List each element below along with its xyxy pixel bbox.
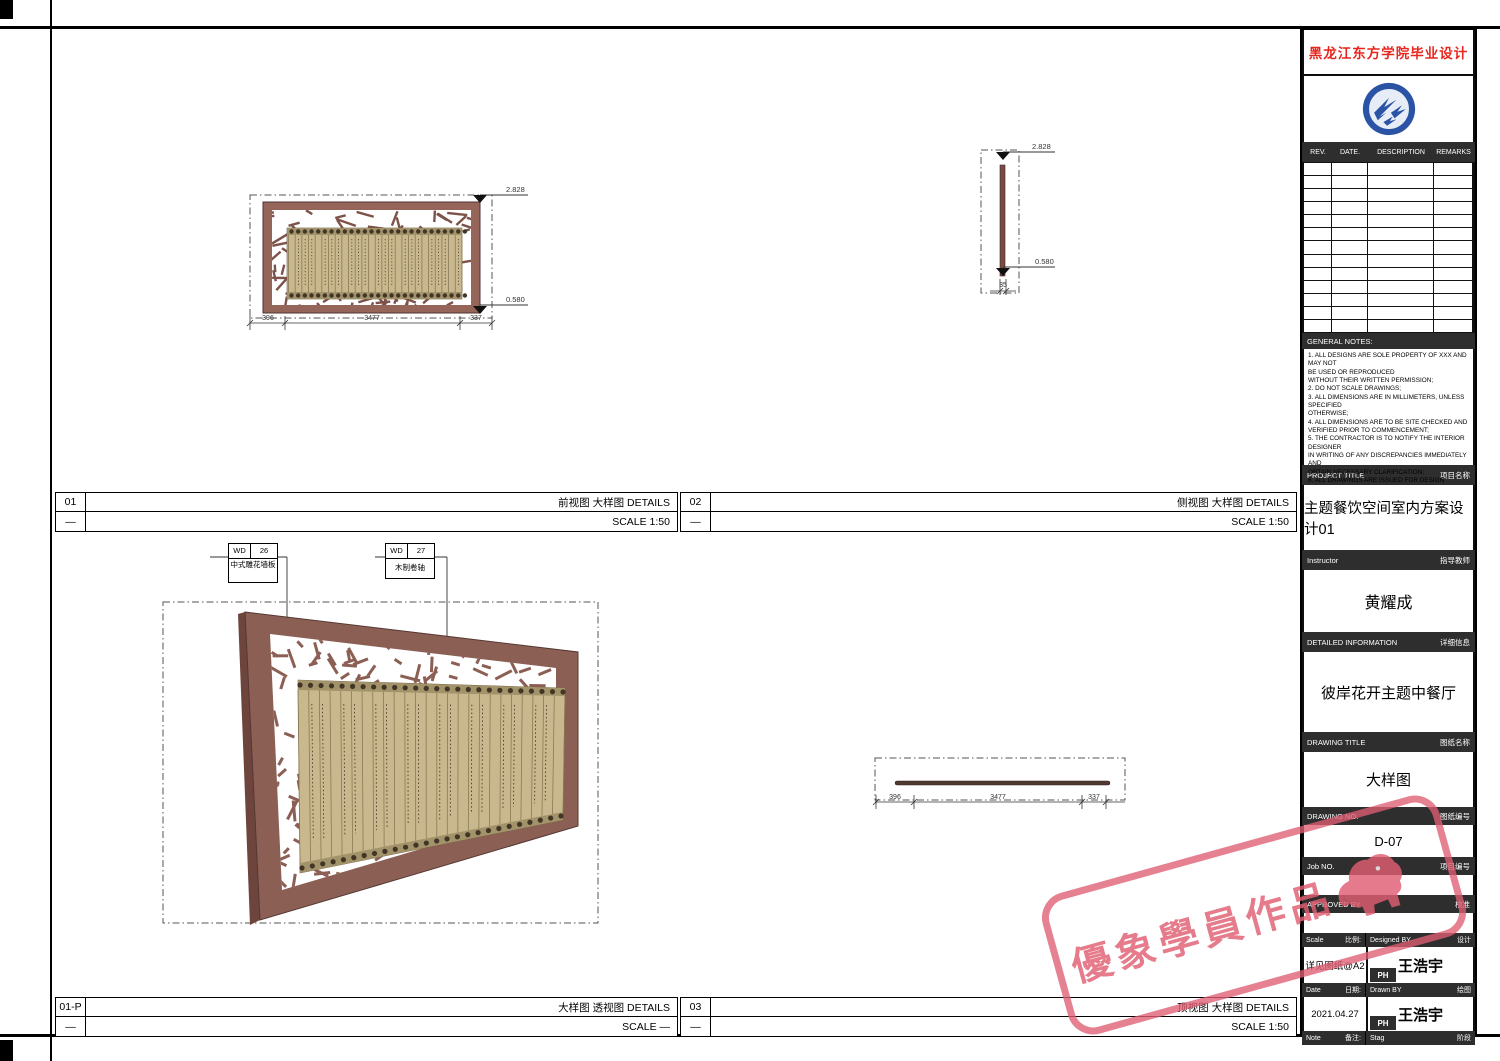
rev-table-cell <box>1304 241 1332 254</box>
rev-table-cell <box>1332 320 1368 333</box>
dim-front-left: 396 <box>262 315 274 322</box>
panel-titlebar-01: 01 前视图 大样图 DETAILS — SCALE 1:50 <box>55 492 678 532</box>
instructor-header: Instructor 指导教师 <box>1302 550 1475 570</box>
panel-scale: SCALE 1:50 <box>711 512 1296 531</box>
panel-number: 01-P <box>56 998 86 1017</box>
panel-number: 01 <box>56 493 86 512</box>
watermark-text: 優象學員作品 <box>1064 865 1340 993</box>
dim-top-mid: 3477 <box>990 794 1006 801</box>
dim-side-top: 2.828 <box>1032 142 1051 151</box>
rev-table-cell <box>1368 268 1434 281</box>
rev-table-cell <box>1304 255 1332 268</box>
rev-table-cell <box>1332 294 1368 307</box>
drawing-no-zh: 图纸编号 <box>1440 811 1470 822</box>
panel-titlebar-03: 03 顶视图 大样图 DETAILS — SCALE 1:50 <box>680 997 1297 1037</box>
rev-table-cell <box>1304 215 1332 228</box>
rev-table-cell <box>1368 320 1434 333</box>
rev-table-cell <box>1434 202 1473 215</box>
date-drawn-values: 2021.04.27 PH 王浩宇 <box>1304 997 1473 1031</box>
rev-table-cell <box>1332 163 1368 176</box>
date-value: 2021.04.27 <box>1304 997 1368 1031</box>
callout-num: 26 <box>251 544 277 558</box>
top-view-drawing: 396 3477 337 <box>858 743 1143 823</box>
drawing-title-value: 大样图 <box>1304 752 1473 807</box>
scale-designed-header: Scale比例: Designed BY设计 <box>1302 933 1475 947</box>
approved-by-value <box>1304 913 1473 933</box>
dim-top-left: 396 <box>889 794 901 801</box>
detailed-info-value: 彼岸花开主题中餐厅 <box>1304 652 1473 732</box>
rev-table-cell <box>1304 163 1332 176</box>
school-title-text: 黑龙江东方学院毕业设计 <box>1309 42 1469 62</box>
rev-table-cell <box>1304 320 1332 333</box>
rev-table-cell <box>1434 320 1473 333</box>
perspective-view-drawing <box>150 533 620 938</box>
sheet-top-border <box>0 26 1500 29</box>
rev-table-cell <box>1434 255 1473 268</box>
panel-dash: — <box>56 1017 86 1036</box>
stage-en: Stag <box>1370 1035 1384 1042</box>
job-no-header: Job NO. 项目编号 <box>1302 857 1475 875</box>
drawing-title-en: DRAWING TITLE <box>1307 738 1365 747</box>
dim-side-bottom: 0.580 <box>1035 257 1054 266</box>
rev-table-cell <box>1332 215 1368 228</box>
panel-scale: SCALE 1:50 <box>86 512 677 531</box>
rev-table-cell <box>1434 163 1473 176</box>
rev-table-cell <box>1368 163 1434 176</box>
drawing-no-en: DRAWING NO. <box>1307 812 1358 821</box>
date-drawn-header: Date日期: Drawn BY绘图 <box>1302 983 1475 997</box>
drawn-by-value: PH 王浩宇 <box>1368 997 1473 1031</box>
note-en: Note <box>1306 1035 1321 1042</box>
title-block: 黑龙江东方学院毕业设计 REV. DATE. DESCRIPTION REMAR… <box>1300 28 1477 1035</box>
scale-value: 详见图纸@A2 <box>1304 947 1368 983</box>
approved-by-en: APPROVED BY <box>1307 900 1361 909</box>
dim-side-width: 35 <box>999 282 1007 289</box>
approved-by-header: APPROVED BY 校准 <box>1302 895 1475 913</box>
rev-table-cell <box>1368 307 1434 320</box>
rev-table-cell <box>1368 281 1434 294</box>
rev-table-cell <box>1434 215 1473 228</box>
rev-table-cell <box>1332 189 1368 202</box>
drawn-by-en: Drawn BY <box>1370 987 1402 994</box>
rev-table-cell <box>1332 241 1368 254</box>
general-notes-title: GENERAL NOTES: <box>1307 337 1373 346</box>
instructor-en: Instructor <box>1307 556 1338 565</box>
rev-table-cell <box>1368 255 1434 268</box>
rev-table-cell <box>1434 228 1473 241</box>
detailed-info-en: DETAILED INFORMATION <box>1307 638 1397 647</box>
description-col: DESCRIPTION <box>1368 149 1434 156</box>
panel-number: 02 <box>681 493 711 512</box>
drawing-sheet: 2.828 0.580 396 3477 337 2.828 0.580 35 <box>0 0 1500 1061</box>
general-notes-body: 1. ALL DESIGNS ARE SOLE PROPERTY OF XXX … <box>1304 349 1473 465</box>
rev-table-cell <box>1304 268 1332 281</box>
note-zh: 备注: <box>1345 1033 1361 1043</box>
panel-titlebar-02: 02 侧视图 大样图 DETAILS — SCALE 1:50 <box>680 492 1297 532</box>
drawn-by-zh: 绘图 <box>1457 985 1471 995</box>
rev-table-cell <box>1332 268 1368 281</box>
date-zh: 日期: <box>1345 985 1361 995</box>
callout-label: 中式雕花墙板 <box>229 559 277 570</box>
callout-code: WD <box>229 544 251 558</box>
panel-dash: — <box>681 1017 711 1036</box>
job-no-value <box>1304 875 1473 895</box>
project-title-zh: 项目名称 <box>1440 470 1470 481</box>
rev-table-cell <box>1368 294 1434 307</box>
side-view-drawing: 2.828 0.580 35 <box>940 133 1110 313</box>
dim-front-right: 337 <box>470 315 482 322</box>
panel-titlebar-01P: 01-P 大样图 透视图 DETAILS — SCALE — <box>55 997 678 1037</box>
rev-table-cell <box>1368 228 1434 241</box>
rev-table-cell <box>1434 189 1473 202</box>
callout-label: 木制卷轴 <box>386 559 434 576</box>
rev-table-cell <box>1332 307 1368 320</box>
remarks-col: REMARKS <box>1434 149 1473 156</box>
scale-en: Scale <box>1306 937 1324 944</box>
rev-table-cell <box>1304 307 1332 320</box>
rev-table-cell <box>1368 241 1434 254</box>
panel-title: 侧视图 大样图 DETAILS <box>711 493 1296 512</box>
project-title-value: 主题餐饮空间室内方案设计01 <box>1304 485 1473 550</box>
rev-table-cell <box>1434 307 1473 320</box>
panel-title: 前视图 大样图 DETAILS <box>86 493 677 512</box>
rev-table <box>1304 162 1473 333</box>
rev-table-cell <box>1434 241 1473 254</box>
rev-table-cell <box>1434 281 1473 294</box>
note-stage-header: Note备注: Stag阶段 <box>1302 1031 1475 1045</box>
rev-table-cell <box>1304 281 1332 294</box>
detailed-info-header: DETAILED INFORMATION 详细信息 <box>1302 632 1475 652</box>
job-no-en: Job NO. <box>1307 862 1335 871</box>
drawing-title-header: DRAWING TITLE 图纸名称 <box>1302 732 1475 752</box>
rev-table-cell <box>1368 176 1434 189</box>
stage-zh: 阶段 <box>1457 1033 1471 1043</box>
drawing-no-header: DRAWING NO. 图纸编号 <box>1302 807 1475 825</box>
panel-dash: — <box>681 512 711 531</box>
rev-table-header: REV. DATE. DESCRIPTION REMARKS <box>1302 142 1475 162</box>
rev-table-cell <box>1304 228 1332 241</box>
rev-table-cell <box>1332 281 1368 294</box>
general-notes-header: GENERAL NOTES: <box>1302 333 1475 349</box>
dim-elev-top: 2.828 <box>506 185 525 194</box>
dim-front-mid: 3477 <box>364 315 380 322</box>
rev-table-cell <box>1368 202 1434 215</box>
instructor-value: 黄耀成 <box>1304 570 1473 632</box>
drawn-ph-badge: PH <box>1370 1016 1396 1030</box>
rev-table-cell <box>1304 202 1332 215</box>
rev-table-cell <box>1368 189 1434 202</box>
rev-table-cell <box>1332 228 1368 241</box>
scale-zh: 比例: <box>1345 935 1361 945</box>
rev-table-cell <box>1434 294 1473 307</box>
callout-num: 27 <box>408 544 434 558</box>
callout-wd26: WD 26 中式雕花墙板 <box>228 543 278 583</box>
panel-dash: — <box>56 512 86 531</box>
callout-wd27: WD 27 木制卷轴 <box>385 543 435 579</box>
rev-table-cell <box>1332 255 1368 268</box>
school-logo <box>1304 76 1473 142</box>
school-logo-icon <box>1361 81 1417 137</box>
dim-top-right: 337 <box>1088 794 1100 801</box>
rev-table-cell <box>1332 202 1368 215</box>
corner-mark-bottom <box>0 1040 13 1061</box>
dim-elev-bottom: 0.580 <box>506 295 525 304</box>
designed-ph-badge: PH <box>1370 968 1396 982</box>
panel-number: 03 <box>681 998 711 1017</box>
drawing-no-value: D-07 <box>1304 825 1473 857</box>
designed-by-value: PH 王浩宇 <box>1368 947 1473 983</box>
panel-scale: SCALE — <box>86 1017 677 1036</box>
school-title: 黑龙江东方学院毕业设计 <box>1304 30 1473 74</box>
approved-by-zh: 校准 <box>1455 899 1470 910</box>
panel-scale: SCALE 1:50 <box>711 1017 1296 1036</box>
rev-table-cell <box>1434 176 1473 189</box>
panel-title: 顶视图 大样图 DETAILS <box>711 998 1296 1017</box>
rev-table-cell <box>1368 215 1434 228</box>
rev-table-cell <box>1304 294 1332 307</box>
drawing-title-zh: 图纸名称 <box>1440 737 1470 748</box>
panel-title: 大样图 透视图 DETAILS <box>86 998 677 1017</box>
callout-code: WD <box>386 544 408 558</box>
date-col: DATE. <box>1332 149 1368 156</box>
rev-table-cell <box>1434 268 1473 281</box>
sheet-left-border <box>50 0 52 1061</box>
detailed-info-zh: 详细信息 <box>1440 637 1470 648</box>
designed-by-zh: 设计 <box>1457 935 1471 945</box>
front-view-drawing: 2.828 0.580 396 3477 337 <box>220 178 550 340</box>
designed-by-name: 王浩宇 <box>1398 955 1443 976</box>
date-en: Date <box>1306 987 1321 994</box>
corner-mark-top <box>0 0 13 19</box>
rev-col: REV. <box>1304 149 1332 156</box>
drawn-by-name: 王浩宇 <box>1398 1004 1443 1025</box>
rev-table-cell <box>1332 176 1368 189</box>
instructor-zh: 指导教师 <box>1440 555 1470 566</box>
rev-table-cell <box>1304 176 1332 189</box>
scale-designed-values: 详见图纸@A2 PH 王浩宇 <box>1304 947 1473 983</box>
designed-by-en: Designed BY <box>1370 937 1411 944</box>
job-no-zh: 项目编号 <box>1440 861 1470 872</box>
rev-table-cell <box>1304 189 1332 202</box>
